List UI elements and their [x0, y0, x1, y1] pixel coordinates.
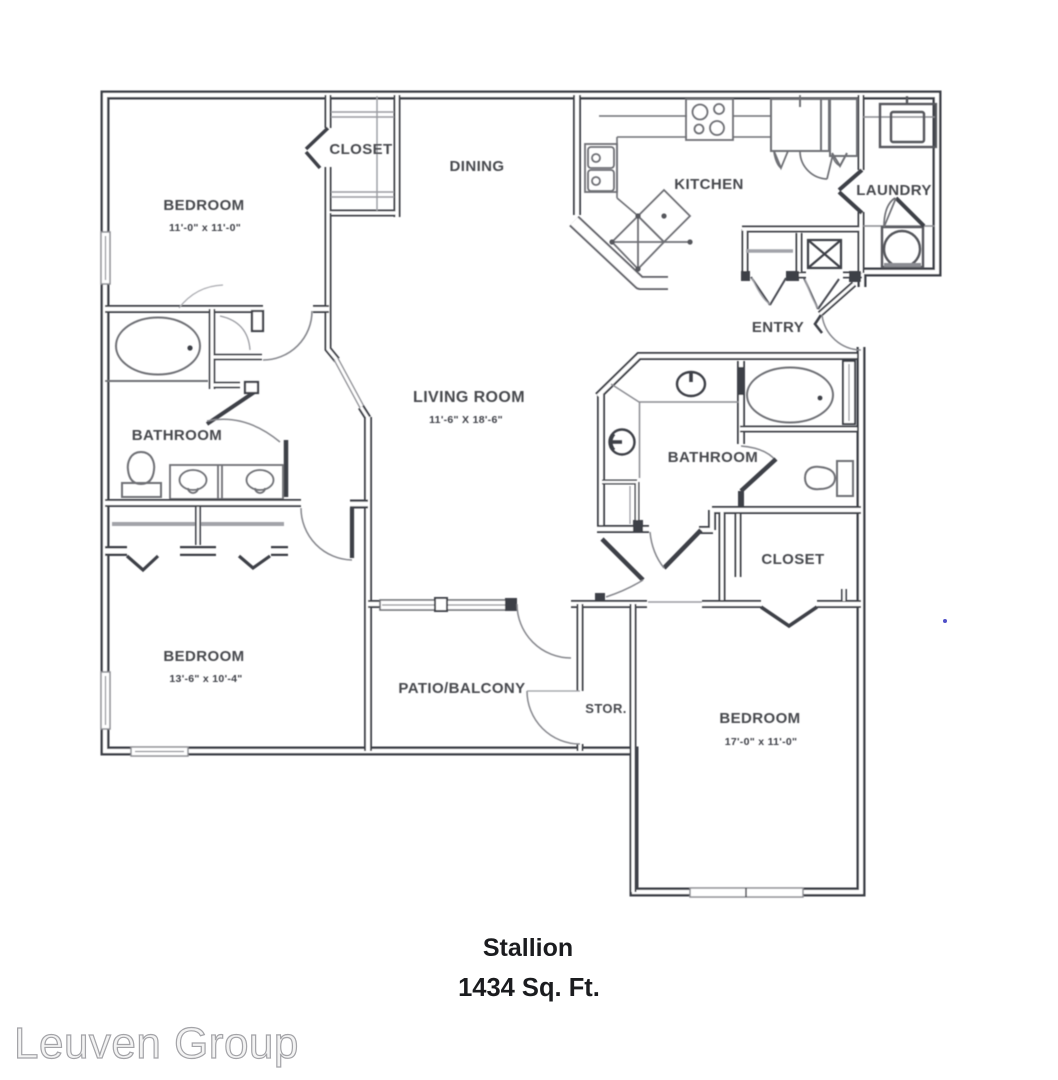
svg-text:1434 Sq. Ft.: 1434 Sq. Ft.: [458, 974, 600, 1002]
svg-text:STOR.: STOR.: [585, 701, 627, 716]
svg-text:Stallion: Stallion: [483, 934, 573, 962]
svg-text:ENTRY: ENTRY: [752, 319, 804, 336]
svg-text:LIVING ROOM: LIVING ROOM: [413, 389, 525, 406]
svg-text:DINING: DINING: [450, 158, 505, 175]
svg-text:KITCHEN: KITCHEN: [674, 176, 743, 193]
svg-text:CLOSET: CLOSET: [761, 551, 824, 568]
svg-text:13'-6" x 10'-4": 13'-6" x 10'-4": [169, 673, 242, 685]
svg-text:PATIO/BALCONY: PATIO/BALCONY: [398, 680, 525, 697]
svg-text:BEDROOM: BEDROOM: [719, 710, 800, 727]
svg-text:BATHROOM: BATHROOM: [668, 449, 758, 466]
svg-text:17'-0" x 11'-0": 17'-0" x 11'-0": [725, 736, 798, 748]
svg-text:CLOSET: CLOSET: [329, 141, 392, 158]
svg-text:BATHROOM: BATHROOM: [132, 427, 222, 444]
svg-text:BEDROOM: BEDROOM: [163, 197, 244, 214]
svg-text:Leuven Group: Leuven Group: [14, 1019, 299, 1068]
svg-text:11'-6" X 18'-6": 11'-6" X 18'-6": [429, 414, 503, 426]
svg-text:BEDROOM: BEDROOM: [163, 648, 244, 665]
svg-text:11'-0" x 11'-0": 11'-0" x 11'-0": [169, 222, 241, 234]
svg-text:LAUNDRY: LAUNDRY: [856, 182, 932, 199]
